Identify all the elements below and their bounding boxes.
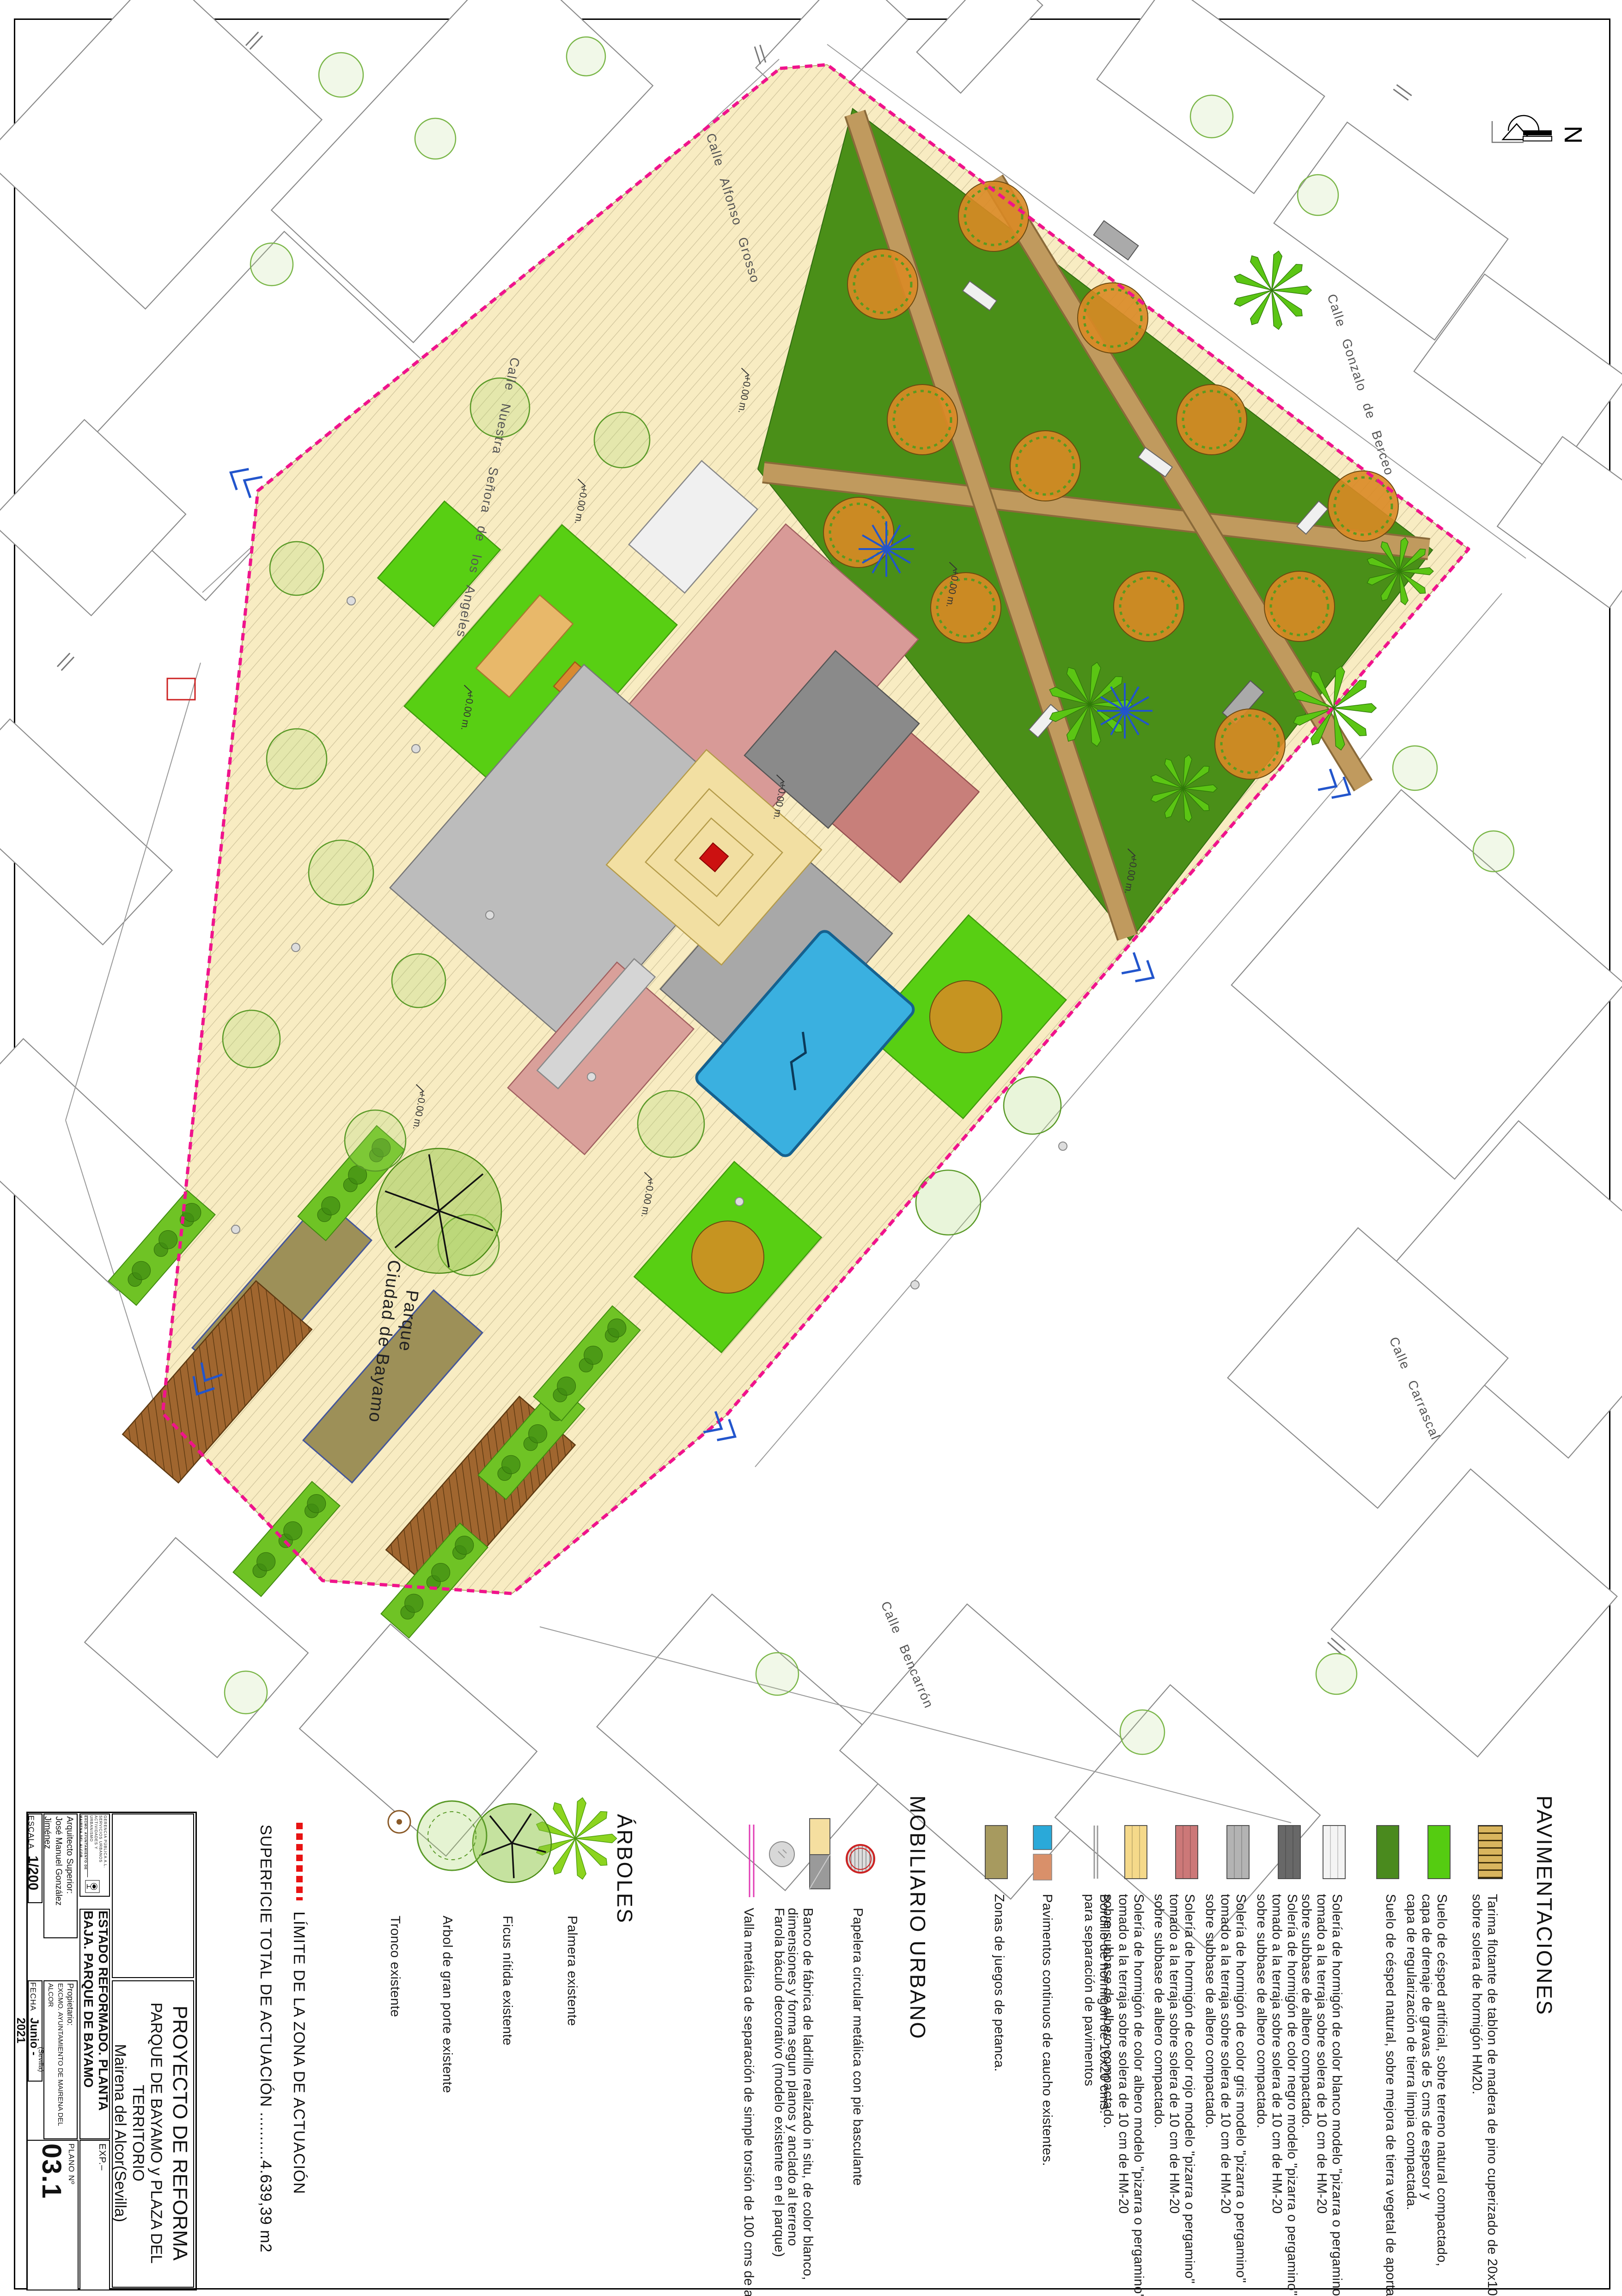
bench-icon: [810, 1819, 830, 1855]
drawing-sheet: Calle Alfonso GrossoCalle Nuestra Señora…: [0, 0, 1622, 2296]
arboles-entry-label: Arbol de gran porte existente: [438, 1916, 455, 2202]
propietario-value2: (Sevilla): [36, 1983, 46, 2136]
project-title-3: Mairena del Alcor(Sevilla): [111, 1982, 129, 2284]
legend-title-arboles: ÁRBOLES: [613, 1814, 637, 1971]
logo-line-2: SERVICIOS URBANOS: [98, 1815, 103, 1877]
arboles-entry-label: Tronco existente: [386, 1916, 402, 2202]
logo-line-3: ACTIVIDADES Y URBANISMO: [89, 1815, 98, 1877]
estado-label: ESTADO REFORMADO. PLANTA BAJA. PARQUE DE…: [83, 1911, 108, 2136]
escala-label: ESCALA: [26, 1815, 36, 1849]
propietario-label: Propietario:: [65, 1983, 75, 2136]
pavimentaciones-entry-label: Suelo de césped natural, sobre mejora de…: [1383, 1894, 1398, 2296]
arboles-entry-label: Palmera existente: [563, 1916, 579, 2202]
exp-label: EXP.–: [84, 2143, 107, 2287]
north-label: N: [1559, 126, 1587, 144]
ayuntamiento-logo-icon: [81, 1880, 104, 1893]
arboles-entry-label: Ficus nítida existente: [498, 1916, 515, 2202]
arquitecto-value: José Manuel González Jiménez: [42, 1816, 64, 1934]
pavimentaciones-entry-label: Tarima flotante de tablon de madera de p…: [1469, 1894, 1500, 2296]
lamppost-icon: [769, 1842, 794, 1867]
mobiliario-entry-label: Valla metálica de separación de simple t…: [740, 1908, 756, 2296]
plano-value: 03.1: [36, 2143, 67, 2287]
escala-value: 1/200: [25, 1856, 41, 1890]
pavimentaciones-entry-label: Zonas de juegos de petanca.: [991, 1894, 1006, 2296]
arquitecto-label: Arquitecto Superior:: [64, 1816, 75, 1934]
pavimentaciones-entry-label: Solería de hormigón de color gris modelo…: [1202, 1894, 1248, 2296]
mobiliario-entry-label: Papelera circular metálica con pie bascu…: [849, 1908, 865, 2296]
title-block-empty-box: [112, 1814, 194, 1978]
bin-icon: [847, 1845, 874, 1873]
pavimentaciones-entry-label: Solería de hormigón de color negro model…: [1254, 1894, 1299, 2296]
legend-superficie-label: SUPERFICIE TOTAL DE ACTUACIÓN ..........…: [256, 1825, 274, 2291]
pavimentaciones-entry-label: Pavimentos continuos de caucho existente…: [1039, 1894, 1055, 2296]
mobiliario-entry-label: Banco de fábrica de ladrillo realizado i…: [784, 1908, 815, 2296]
logo-line-1: GERENCIA PÚBLICA A.L.: [103, 1815, 107, 1877]
project-title-1: PROYECTO DE REFORMA: [168, 1982, 191, 2284]
pavimentaciones-entry-label: Bordillo de hormigón de 10x20 cms.para s…: [1081, 1894, 1112, 2296]
pavimentaciones-entry-label: Solería de hormigón de color blanco mode…: [1299, 1894, 1344, 2296]
pavimentaciones-entry-label: Solería de hormigón de color rojo modelo…: [1151, 1894, 1197, 2296]
pavimentaciones-entry-label: Suelo de césped artificial, sobre terren…: [1403, 1894, 1449, 2296]
project-title-2: PARQUE DE BAYAMO y PLAZA DEL TERRITORIO: [129, 1982, 165, 2284]
legend-title-mobiliario: MOBILIARIO URBANO: [906, 1795, 930, 2082]
propietario-value: EXCMO. AYUNTAMIENTO DE MAIRENA DEL ALCOR: [46, 1983, 65, 2136]
north-arrow-icon: N: [1492, 116, 1587, 144]
legend-limite-label: LÍMITE DE LA ZONA DE ACTUACIÓN: [289, 1911, 308, 2272]
plano-label: PLANO Nº: [67, 2143, 76, 2287]
mobiliario-entry-label: Farola báculo decorativo (modelo existen…: [771, 1908, 787, 2296]
logo-sub: EXCMO. AYUNTAMIENTO DE MAIRENA DEL ALCOR: [78, 1815, 88, 1877]
legend-title-pavimentaciones: PAVIMENTACIONES: [1532, 1795, 1556, 2054]
